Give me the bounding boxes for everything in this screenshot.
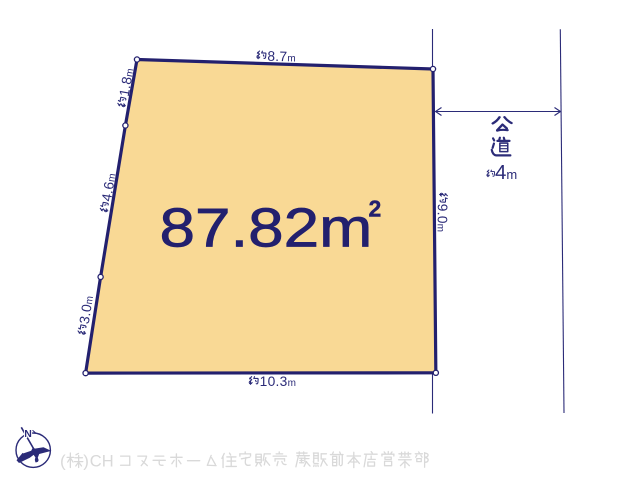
svg-text:87.82m: 87.82m [160,197,373,259]
svg-text:N: N [24,428,32,440]
svg-text:): ) [83,452,89,471]
svg-text:2: 2 [369,196,382,222]
svg-text:(: ( [60,452,66,471]
svg-text:CH: CH [90,453,114,471]
